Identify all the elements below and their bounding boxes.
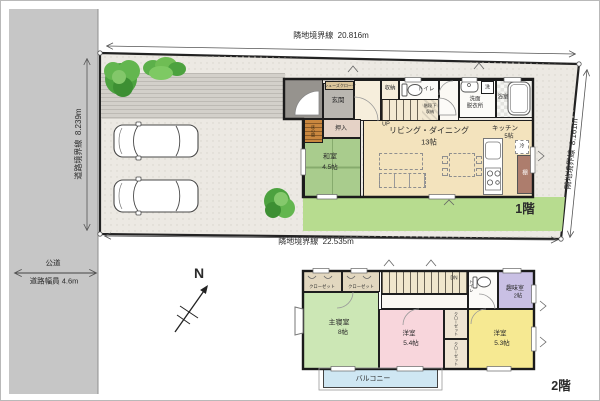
genkan-label: 玄関 xyxy=(332,98,345,105)
washitsu-label2: 4.5帖 xyxy=(322,165,338,172)
master-door-swing xyxy=(337,292,353,308)
stove-icon xyxy=(486,168,501,190)
road-width-name: 道路幅員 xyxy=(30,276,60,285)
closet-b-label: クローゼット xyxy=(454,342,458,366)
closet-a-label: クローゼット xyxy=(454,312,458,336)
kitchen-sink-icon xyxy=(486,142,501,159)
shoes-closet-label: シューズクローク xyxy=(324,84,356,88)
north-label: N xyxy=(194,266,204,280)
boundary-name: 隣地境界線 xyxy=(278,237,318,246)
washer-label: 洗 xyxy=(485,85,490,90)
fridge-label: 冷 xyxy=(519,145,524,150)
washitsu-label1: 和室 xyxy=(323,154,337,161)
washroom-door-swing xyxy=(439,98,456,115)
toilet-door-swing xyxy=(439,81,453,95)
stairs-dn-label: DN xyxy=(450,277,457,282)
boundary-top-label: 隣地境界線 20.816m xyxy=(293,32,369,40)
road-width-label: 道路幅員 4.6m xyxy=(30,277,79,285)
west-a-door-swing xyxy=(403,309,419,325)
west-a-label2: 5.4帖 xyxy=(403,341,419,348)
living-label2: 13帖 xyxy=(421,138,437,146)
washroom-label1: 洗面 xyxy=(469,97,480,103)
master-label1: 主寝室 xyxy=(329,320,350,327)
floor2-label: 2階 xyxy=(551,380,570,393)
toilet-2f-label: トイレ xyxy=(469,280,473,293)
boundary-name: 道路境界線 xyxy=(74,140,83,180)
kitchen-label1: キッチン xyxy=(492,126,518,133)
floor1-label: 1階 xyxy=(515,203,534,216)
boundary-bottom-label: 隣地境界線 22.535m xyxy=(278,238,354,246)
boundary-length: 22.535m xyxy=(323,237,354,246)
bathroom-label: 浴室 xyxy=(497,95,508,101)
road-name-label: 公道 xyxy=(46,259,61,267)
master-label2: 8帖 xyxy=(338,330,348,337)
boundary-name: 隣地境界線 xyxy=(293,31,333,40)
toilet-1f-label: トイレ xyxy=(418,87,435,93)
living-label1: リビング・ダイニング xyxy=(389,127,469,135)
closet-right-label: クローゼット xyxy=(348,285,374,289)
under-stairs-label2: 収納 xyxy=(426,110,434,114)
road-width-value: 4.6m xyxy=(62,276,79,285)
bay-window xyxy=(295,307,303,335)
hobby-label2: 2帖 xyxy=(514,294,523,300)
washroom-label2: 脱衣所 xyxy=(467,104,484,110)
west-a-label1: 洋室 xyxy=(403,331,416,338)
hobby-label1: 趣味室 xyxy=(506,286,524,292)
shelf-label: 棚 xyxy=(522,171,528,177)
balcony-label: バルコニー xyxy=(356,376,391,383)
under-stairs-label1: 階段下 xyxy=(424,104,437,108)
floor-plan-canvas: 隣地境界線 20.816m 隣地境界線 22.535m 道路境界線 8.239m… xyxy=(0,0,600,401)
toilet2-door-swing xyxy=(479,294,495,309)
boundary-left-label: 道路境界線 8.239m xyxy=(75,108,83,179)
bathtub-icon xyxy=(508,82,530,115)
oshiire-label: 押入 xyxy=(335,126,347,132)
boundary-length: 20.816m xyxy=(338,31,369,40)
boundary-length: 8.239m xyxy=(74,108,83,135)
washbasin-icon xyxy=(461,81,478,92)
tokonoma-label: 床の間 xyxy=(311,125,315,137)
storage-1f-label: 収納 xyxy=(384,86,395,92)
closet-left-label: クローゼット xyxy=(309,285,335,289)
door-swing xyxy=(354,97,378,121)
west-b-door-swing xyxy=(471,309,486,324)
entrance-door-swing xyxy=(295,91,319,115)
west-b-label2: 5.3帖 xyxy=(494,341,510,348)
toilet-icon xyxy=(473,277,491,288)
window-marks xyxy=(301,78,536,372)
kitchen-label2: 5帖 xyxy=(504,134,513,140)
hanger-icons xyxy=(308,276,371,279)
west-b-label1: 洋室 xyxy=(494,331,507,338)
